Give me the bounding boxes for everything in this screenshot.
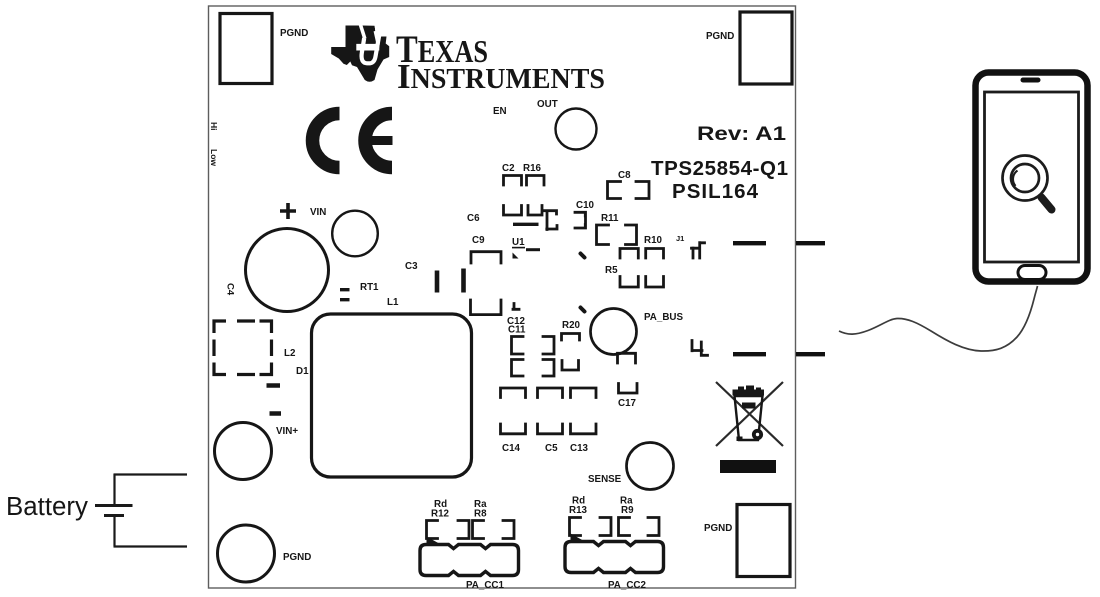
svg-text:R20: R20 <box>562 320 581 331</box>
svg-text:PGND: PGND <box>280 28 308 39</box>
svg-text:C8: C8 <box>618 170 631 181</box>
svg-text:Battery: Battery <box>6 493 88 521</box>
svg-text:PGND: PGND <box>283 552 311 563</box>
svg-text:R12: R12 <box>431 509 450 520</box>
svg-text:C3: C3 <box>405 261 418 272</box>
svg-text:Rev: A1: Rev: A1 <box>697 123 786 145</box>
svg-text:C13: C13 <box>570 443 589 454</box>
svg-text:Low: Low <box>209 149 219 166</box>
svg-text:C9: C9 <box>472 235 485 246</box>
svg-text:Hi: Hi <box>209 122 219 131</box>
svg-text:R11: R11 <box>601 213 619 224</box>
svg-text:D1: D1 <box>296 366 309 377</box>
svg-text:C4: C4 <box>225 283 236 296</box>
svg-text:L2: L2 <box>284 348 296 359</box>
svg-text:VIN+: VIN+ <box>276 426 298 437</box>
svg-text:R5: R5 <box>605 265 618 276</box>
svg-text:PGND: PGND <box>706 31 734 42</box>
svg-text:C5: C5 <box>545 443 558 454</box>
svg-text:VIN: VIN <box>310 207 326 218</box>
svg-text:C17: C17 <box>618 398 637 409</box>
svg-text:TPS25854-Q1: TPS25854-Q1 <box>651 157 788 180</box>
svg-text:U1: U1 <box>512 237 525 248</box>
svg-text:C14: C14 <box>502 443 521 454</box>
svg-text:EN: EN <box>493 106 507 117</box>
svg-text:R13: R13 <box>569 505 588 516</box>
svg-text:R10: R10 <box>644 235 663 246</box>
svg-text:C10: C10 <box>576 200 595 211</box>
svg-text:RT1: RT1 <box>360 282 379 293</box>
svg-text:L1: L1 <box>387 297 399 308</box>
svg-text:J1: J1 <box>676 234 684 243</box>
svg-text:PA_BUS: PA_BUS <box>644 312 683 323</box>
svg-text:OUT: OUT <box>537 99 558 110</box>
svg-text:PA_CC2: PA_CC2 <box>608 580 646 591</box>
svg-text:SENSE: SENSE <box>588 474 622 485</box>
svg-text:C2: C2 <box>502 163 515 174</box>
svg-text:C6: C6 <box>467 213 480 224</box>
svg-text:R8: R8 <box>474 509 487 520</box>
svg-text:C11: C11 <box>508 325 526 336</box>
svg-text:R9: R9 <box>621 505 634 516</box>
svg-text:R16: R16 <box>523 163 542 174</box>
svg-text:PA_CC1: PA_CC1 <box>466 580 504 591</box>
svg-text:PGND: PGND <box>704 523 732 534</box>
